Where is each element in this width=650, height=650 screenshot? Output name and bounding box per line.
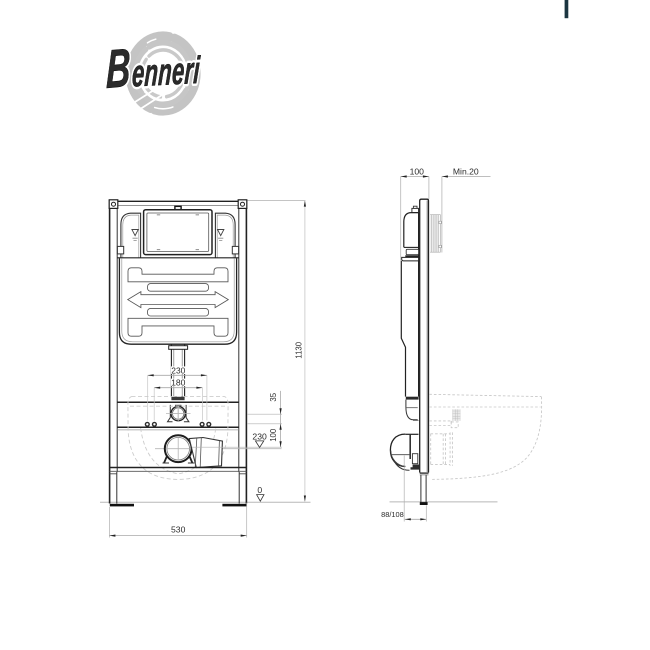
- svg-text:0: 0: [257, 485, 262, 495]
- svg-text:Min.20: Min.20: [453, 166, 479, 176]
- svg-text:B: B: [106, 37, 131, 100]
- svg-text:88/108: 88/108: [381, 510, 404, 519]
- svg-text:100: 100: [269, 428, 278, 442]
- svg-text:180: 180: [171, 377, 186, 387]
- svg-text:230: 230: [252, 432, 267, 442]
- svg-text:enneri: enneri: [131, 49, 202, 95]
- svg-text:530: 530: [171, 524, 186, 534]
- svg-text:1130: 1130: [294, 341, 303, 358]
- svg-text:230: 230: [171, 366, 185, 376]
- svg-text:35: 35: [269, 392, 278, 401]
- svg-text:100: 100: [410, 166, 425, 176]
